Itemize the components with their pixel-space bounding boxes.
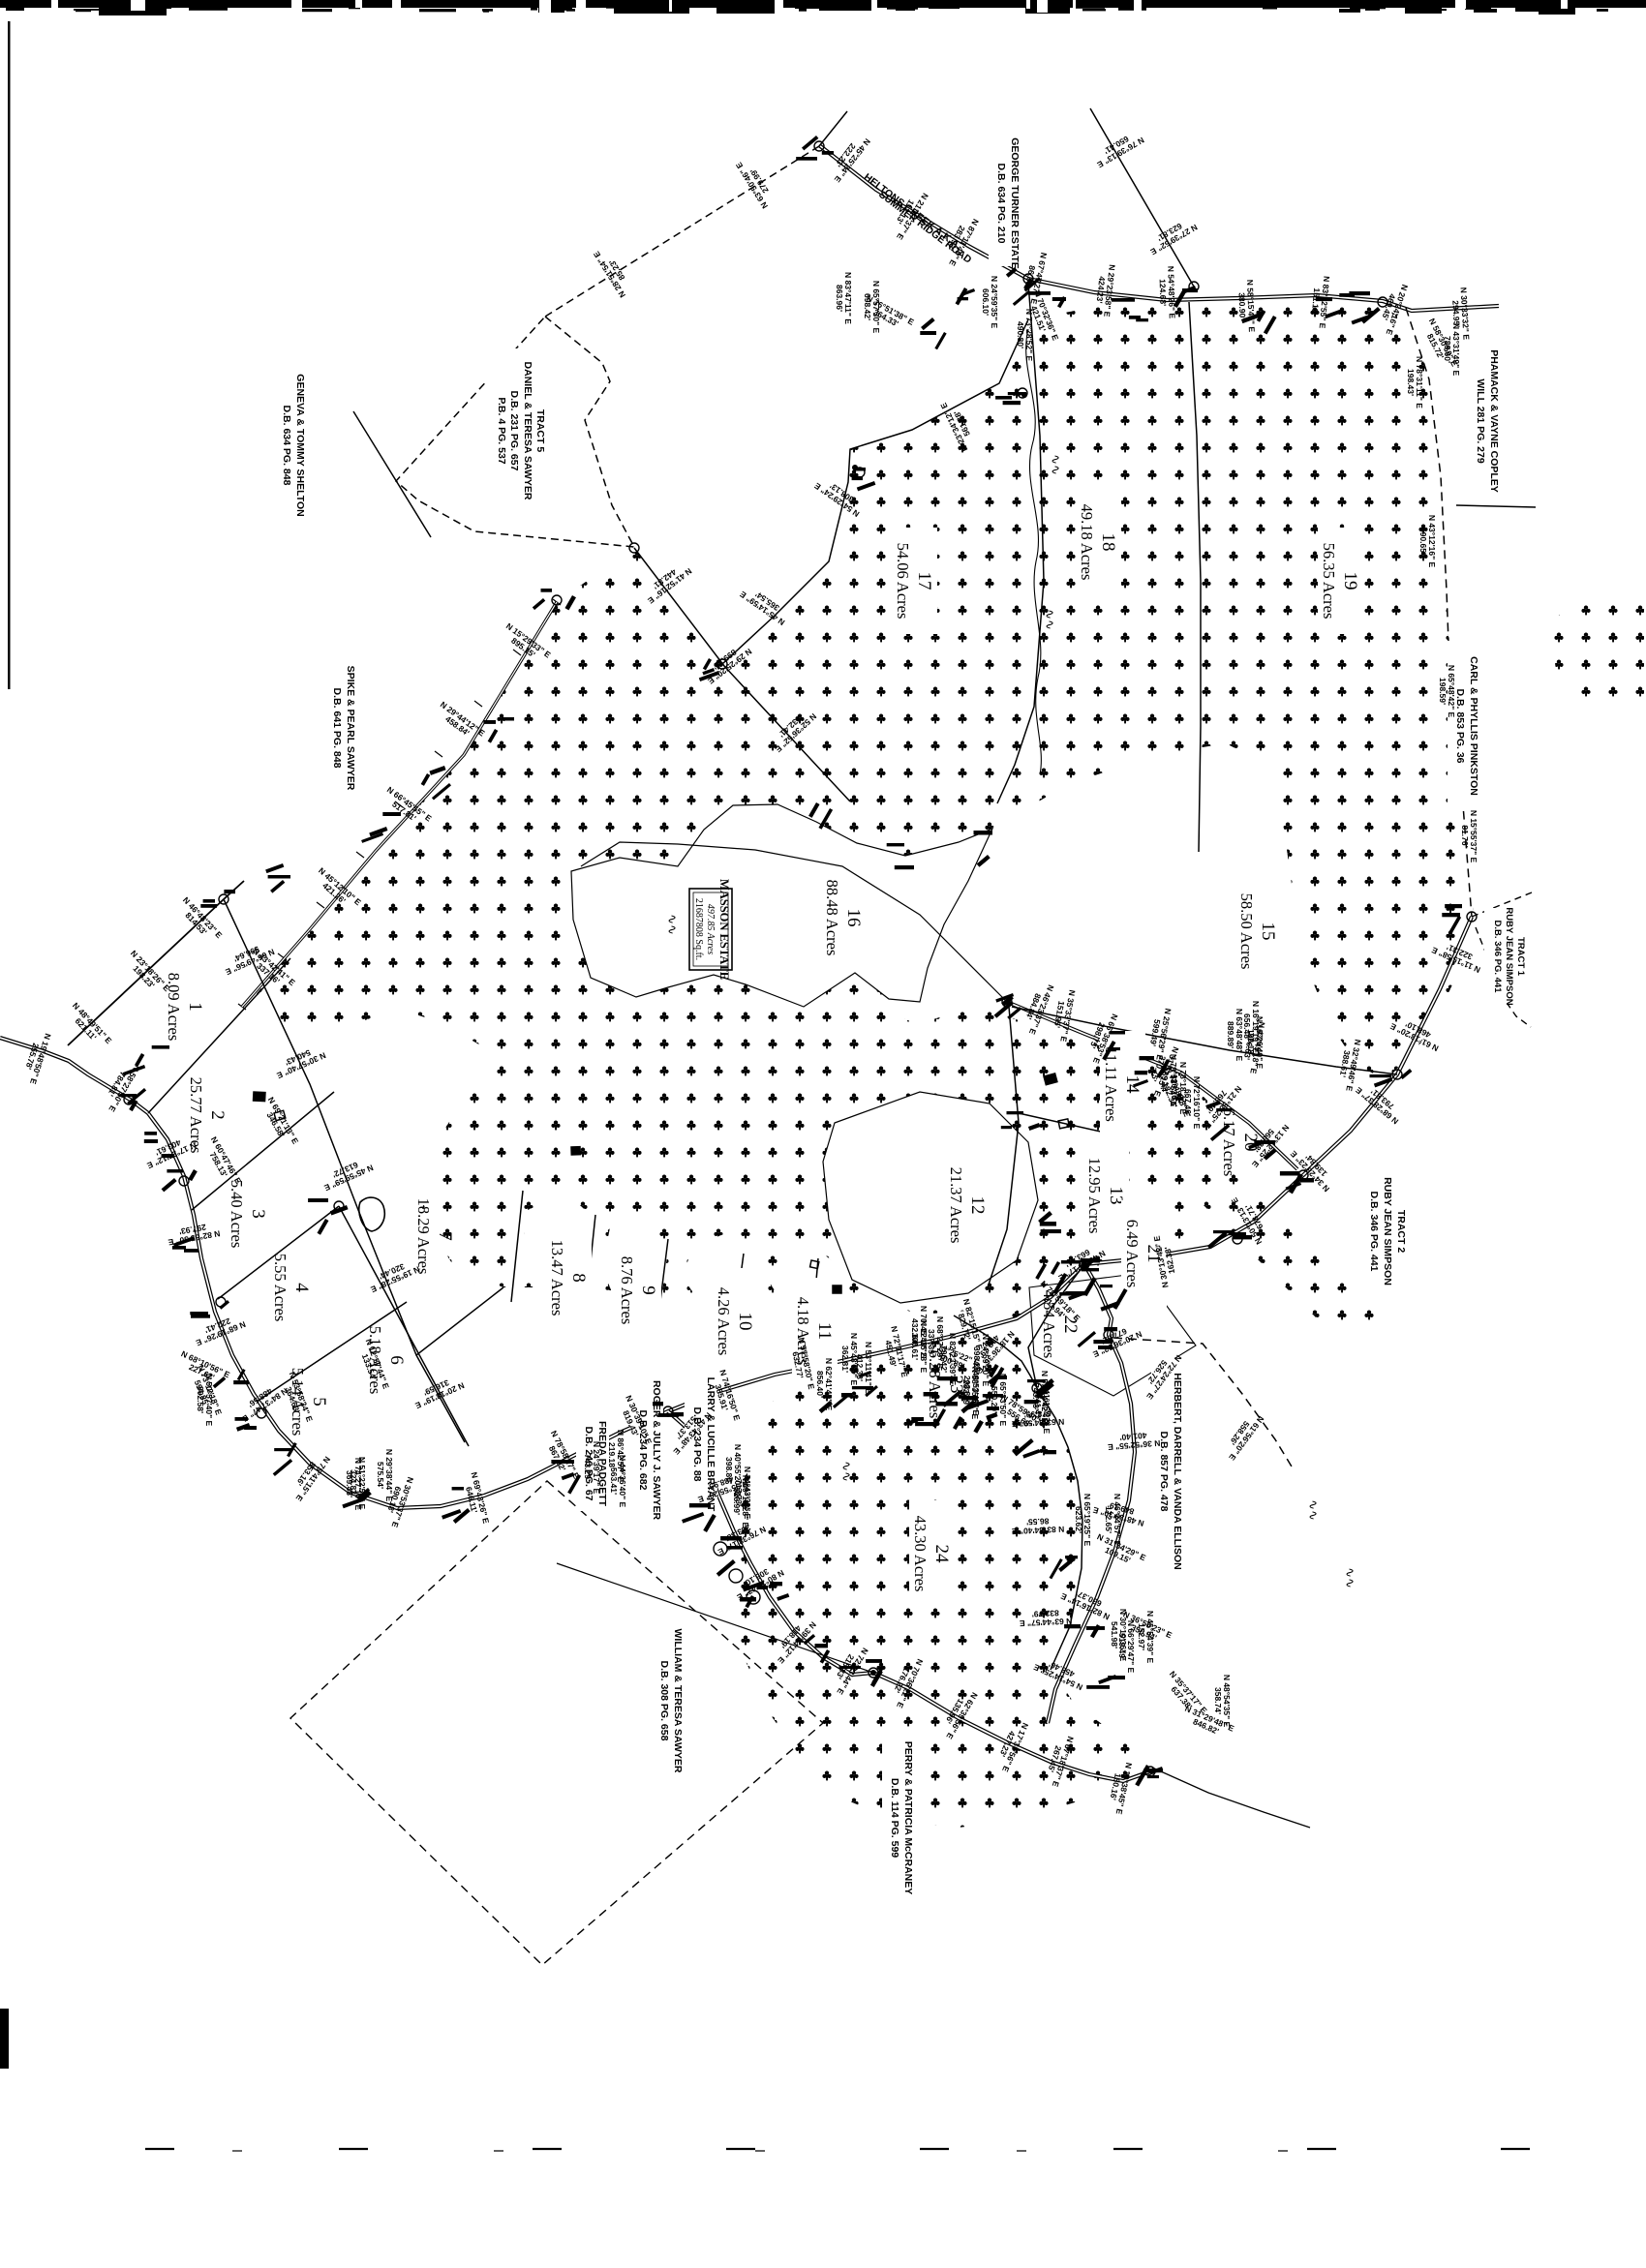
svg-text:43.30 Acres: 43.30 Acres bbox=[911, 1516, 930, 1592]
svg-text:5.55 Acres: 5.55 Acres bbox=[271, 1254, 290, 1322]
svg-text:P.B. 4 PG. 537: P.B. 4 PG. 537 bbox=[496, 397, 507, 464]
svg-text:17: 17 bbox=[914, 572, 934, 590]
svg-text:CARL & PHYLLIS PINKSTON: CARL & PHYLLIS PINKSTON bbox=[1468, 656, 1479, 796]
svg-text:16: 16 bbox=[843, 909, 864, 927]
svg-text:8: 8 bbox=[568, 1273, 589, 1283]
svg-text:RUBY JEAN SIMPSON: RUBY JEAN SIMPSON bbox=[1504, 907, 1514, 1005]
svg-text:19: 19 bbox=[1340, 572, 1360, 590]
svg-text:832.79': 832.79' bbox=[1031, 1608, 1058, 1618]
svg-text:18: 18 bbox=[1098, 533, 1118, 552]
svg-text:D.B. 308 PG. 658: D.B. 308 PG. 658 bbox=[658, 1661, 670, 1741]
svg-text:PHAMACK & VAYNE COPLEY: PHAMACK & VAYNE COPLEY bbox=[1488, 349, 1500, 493]
svg-text:8.76 Acres: 8.76 Acres bbox=[618, 1256, 636, 1325]
svg-text:124.68': 124.68' bbox=[1158, 279, 1169, 306]
svg-text:863.96': 863.96' bbox=[835, 285, 844, 312]
svg-text:TRACT 5: TRACT 5 bbox=[534, 409, 546, 452]
svg-text:GEORGE TURNER ESTATE: GEORGE TURNER ESTATE bbox=[1009, 137, 1021, 269]
svg-text:126.16': 126.16' bbox=[1170, 1074, 1179, 1102]
svg-text:2: 2 bbox=[207, 1110, 228, 1120]
svg-text:25.77 Acres: 25.77 Acres bbox=[187, 1077, 205, 1154]
svg-text:541.98': 541.98' bbox=[1110, 1621, 1119, 1648]
svg-text:575.54': 575.54' bbox=[376, 1462, 385, 1489]
svg-text:HERBERT, DARRELL & VANDA ELLIS: HERBERT, DARRELL & VANDA ELLISON bbox=[1172, 1373, 1183, 1569]
svg-text:6.49 Acres: 6.49 Acres bbox=[1123, 1220, 1142, 1288]
svg-text:12: 12 bbox=[967, 1196, 988, 1215]
svg-text:SPIKE & PEARL SAWYER: SPIKE & PEARL SAWYER bbox=[345, 666, 356, 791]
svg-text:ROGER & JULLY J. SAWYER: ROGER & JULLY J. SAWYER bbox=[651, 1380, 662, 1521]
svg-text:198.43': 198.43' bbox=[1406, 369, 1416, 396]
svg-text:12.95 Acres: 12.95 Acres bbox=[1085, 1158, 1104, 1234]
svg-text:5.40 Acres: 5.40 Acres bbox=[228, 1180, 246, 1249]
svg-text:690.65': 690.65' bbox=[1418, 528, 1428, 555]
svg-text:21687808 Sq.ft.: 21687808 Sq.ft. bbox=[693, 898, 704, 960]
svg-text:56.35 Acres: 56.35 Acres bbox=[1320, 543, 1338, 620]
svg-text:∿∿: ∿∿ bbox=[665, 914, 680, 935]
svg-text:18.29 Acres: 18.29 Acres bbox=[414, 1198, 433, 1275]
svg-text:10: 10 bbox=[735, 1313, 755, 1331]
svg-text:GENEVA & TOMMY SHELTON: GENEVA & TOMMY SHELTON bbox=[294, 374, 306, 516]
svg-text:362.81': 362.81' bbox=[840, 1346, 850, 1373]
svg-text:324.83': 324.83' bbox=[349, 1469, 358, 1497]
svg-text:623.62': 623.62' bbox=[1074, 1506, 1083, 1533]
svg-text:5: 5 bbox=[309, 1397, 329, 1406]
svg-text:∿∿: ∿∿ bbox=[839, 1461, 854, 1482]
svg-text:398.80': 398.80' bbox=[724, 1457, 734, 1484]
svg-text:4.26 Acres: 4.26 Acres bbox=[715, 1287, 733, 1356]
svg-text:856.40': 856.40' bbox=[815, 1371, 825, 1398]
svg-text:DANIEL & TERESA SAWYER: DANIEL & TERESA SAWYER bbox=[522, 362, 533, 500]
svg-text:24: 24 bbox=[931, 1545, 952, 1564]
svg-text:9: 9 bbox=[638, 1285, 658, 1295]
svg-text:380.90': 380.90' bbox=[1236, 292, 1247, 319]
svg-text:MASSON ESTATE: MASSON ESTATE bbox=[717, 879, 731, 980]
svg-text:4: 4 bbox=[291, 1283, 312, 1292]
svg-text:88.48 Acres: 88.48 Acres bbox=[823, 880, 841, 956]
svg-text:6: 6 bbox=[386, 1355, 407, 1365]
svg-text:∿∿: ∿∿ bbox=[1343, 1567, 1357, 1588]
svg-text:7: 7 bbox=[435, 1231, 455, 1241]
svg-text:13.47 Acres: 13.47 Acres bbox=[548, 1240, 566, 1316]
svg-text:TRACT 2: TRACT 2 bbox=[1395, 1210, 1407, 1253]
svg-text:D.B. 346 PG. 441: D.B. 346 PG. 441 bbox=[1492, 921, 1503, 994]
svg-text:PERRY & PATRICIA McCRANEY: PERRY & PATRICIA McCRANEY bbox=[902, 1741, 914, 1895]
svg-text:54.06 Acres: 54.06 Acres bbox=[894, 543, 912, 620]
svg-text:WILL 281 PG. 279: WILL 281 PG. 279 bbox=[1475, 378, 1486, 464]
svg-text:172.65': 172.65' bbox=[1104, 1506, 1113, 1533]
svg-text:∿∿: ∿∿ bbox=[1306, 1499, 1321, 1521]
svg-text:RUBY JEAN SIMPSON: RUBY JEAN SIMPSON bbox=[1382, 1177, 1393, 1285]
svg-text:D.B. 346 PG. 441: D.B. 346 PG. 441 bbox=[1368, 1192, 1380, 1272]
svg-text:889.89': 889.89' bbox=[1226, 1021, 1235, 1048]
svg-text:∿∿: ∿∿ bbox=[1049, 454, 1063, 475]
svg-text:D.B. 114 PG. 599: D.B. 114 PG. 599 bbox=[889, 1778, 900, 1858]
svg-text:15: 15 bbox=[1258, 922, 1278, 941]
svg-text:3: 3 bbox=[248, 1209, 268, 1219]
svg-text:358.74': 358.74' bbox=[1213, 1687, 1223, 1714]
svg-text:WILLIAM & TERESA SAWYER: WILLIAM & TERESA SAWYER bbox=[672, 1629, 684, 1773]
svg-text:743.29': 743.29' bbox=[583, 1454, 593, 1481]
svg-text:∿∿: ∿∿ bbox=[1043, 609, 1057, 630]
svg-text:TRACT 1: TRACT 1 bbox=[1515, 937, 1526, 977]
svg-text:490.80': 490.80' bbox=[1016, 321, 1025, 348]
svg-text:6.17 Acres: 6.17 Acres bbox=[1220, 1108, 1238, 1177]
svg-text:D.B. 634 PG. 848: D.B. 634 PG. 848 bbox=[281, 406, 292, 486]
svg-text:432.64': 432.64' bbox=[910, 1318, 920, 1346]
svg-text:497.85 Acres: 497.85 Acres bbox=[705, 904, 716, 954]
svg-text:337.39': 337.39' bbox=[927, 1329, 936, 1356]
svg-text:49.18 Acres: 49.18 Acres bbox=[1078, 504, 1096, 581]
svg-text:81.76': 81.76' bbox=[1460, 825, 1470, 847]
svg-text:667.46': 667.46' bbox=[1183, 1089, 1193, 1116]
svg-text:D.B. 231 PG. 657: D.B. 231 PG. 657 bbox=[508, 391, 520, 471]
svg-text:198.59': 198.59' bbox=[1438, 678, 1448, 705]
svg-text:11: 11 bbox=[814, 1322, 835, 1340]
svg-text:219.18': 219.18' bbox=[607, 1442, 617, 1469]
svg-text:606.10': 606.10' bbox=[981, 288, 991, 316]
svg-text:86.55': 86.55' bbox=[1026, 1516, 1050, 1527]
svg-text:D.B. 634 PG. 210: D.B. 634 PG. 210 bbox=[995, 164, 1007, 244]
svg-text:1: 1 bbox=[185, 1002, 205, 1012]
svg-text:21.37 Acres: 21.37 Acres bbox=[947, 1167, 965, 1244]
svg-text:152.97': 152.97' bbox=[1137, 1623, 1146, 1650]
svg-text:D.B. 641 PG. 848: D.B. 641 PG. 848 bbox=[331, 688, 343, 769]
svg-text:58.50 Acres: 58.50 Acres bbox=[1237, 893, 1256, 970]
